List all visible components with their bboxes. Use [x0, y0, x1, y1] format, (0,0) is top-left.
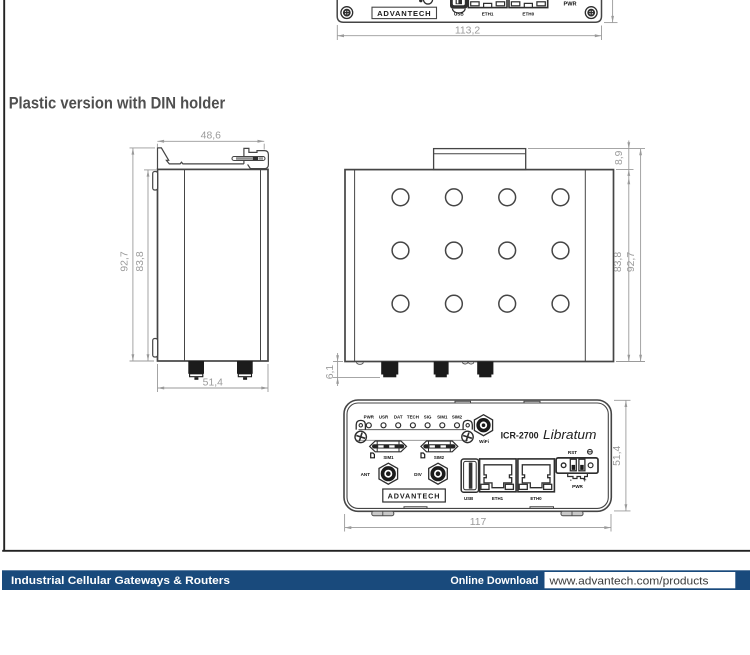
svg-text:USR: USR — [379, 414, 389, 419]
svg-text:48,6: 48,6 — [201, 131, 221, 142]
svg-text:8,9: 8,9 — [614, 150, 625, 165]
svg-text:83,8: 83,8 — [135, 251, 146, 271]
svg-text:113,2: 113,2 — [455, 25, 480, 36]
svg-text:Libratum: Libratum — [543, 427, 597, 442]
svg-text:WiFi: WiFi — [479, 439, 489, 444]
svg-text:SIM2: SIM2 — [452, 414, 463, 419]
svg-text:SIG: SIG — [424, 414, 432, 419]
svg-text:ETH1: ETH1 — [482, 11, 494, 16]
svg-text:51,4: 51,4 — [612, 445, 623, 465]
svg-text:PWR: PWR — [364, 414, 375, 419]
svg-text:ICR-2700: ICR-2700 — [501, 431, 539, 441]
svg-text:DIV: DIV — [414, 472, 423, 477]
svg-text:ADVANTECH: ADVANTECH — [388, 492, 441, 501]
svg-text:Industrial Cellular Gateways &: Industrial Cellular Gateways & Routers — [11, 575, 230, 587]
svg-text:ETH1: ETH1 — [492, 496, 504, 501]
svg-text:www.advantech.com/products: www.advantech.com/products — [548, 575, 708, 587]
svg-text:83,8: 83,8 — [613, 252, 624, 272]
svg-text:SIM1: SIM1 — [437, 414, 448, 419]
svg-text:SIM2: SIM2 — [434, 455, 445, 460]
svg-text:51,4: 51,4 — [203, 377, 223, 388]
svg-text:PWR: PWR — [572, 484, 583, 489]
svg-text:92,7: 92,7 — [119, 251, 130, 271]
svg-text:ETH0: ETH0 — [530, 496, 542, 501]
svg-text:ADVANTECH: ADVANTECH — [377, 9, 431, 18]
svg-text:ETH0: ETH0 — [522, 11, 534, 16]
svg-text:DAT: DAT — [394, 414, 403, 419]
svg-text:92,7: 92,7 — [626, 252, 637, 272]
svg-text:Online Download: Online Download — [450, 575, 538, 587]
svg-text:117: 117 — [470, 517, 487, 528]
svg-text:RST: RST — [568, 450, 577, 455]
svg-text:USB: USB — [464, 496, 473, 501]
svg-text:TECH: TECH — [407, 414, 419, 419]
svg-text:ANT: ANT — [361, 472, 371, 477]
svg-text:SIM1: SIM1 — [383, 455, 394, 460]
svg-text:6,1: 6,1 — [325, 365, 336, 380]
svg-text:Plastic version with DIN holde: Plastic version with DIN holder — [9, 94, 226, 112]
svg-text:USB: USB — [454, 11, 464, 16]
svg-text:+: + — [583, 478, 587, 484]
svg-text:PWR: PWR — [564, 2, 577, 8]
